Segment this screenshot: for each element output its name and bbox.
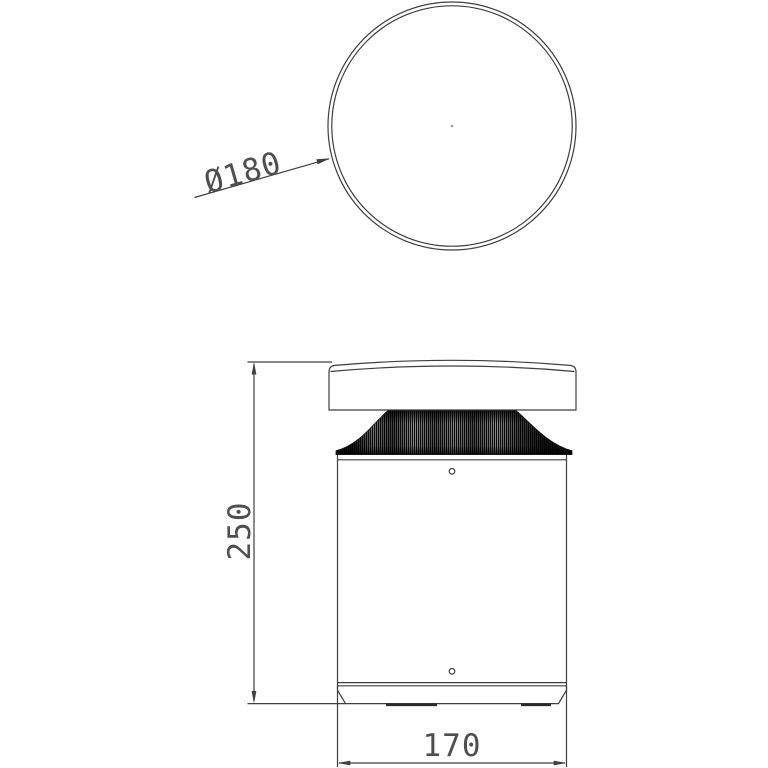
technical-drawing-svg: [0, 0, 768, 768]
height-dim-label: 250: [222, 502, 258, 561]
diameter-leader-arrowhead: [316, 158, 330, 164]
cone-shade-vertical: [336, 411, 572, 455]
width-dim-arrow-left: [338, 761, 351, 766]
screw-hole-bottom: [449, 669, 455, 675]
cap-outline: [329, 360, 576, 410]
width-dim-label: 170: [423, 728, 482, 764]
center-mark: [451, 125, 454, 128]
top-view: [195, 2, 577, 250]
front-view: [248, 360, 577, 705]
technical-drawing-page: Ø180 250 170: [0, 0, 768, 768]
cap-rim-line: [331, 366, 575, 372]
base-section: [338, 686, 567, 705]
height-dim-arrow-bottom: [252, 691, 257, 704]
height-dim-arrow-top: [252, 362, 257, 375]
base-outline: [338, 686, 567, 704]
cone-section: [336, 411, 572, 455]
body-section: [338, 455, 567, 690]
screw-hole-top: [449, 469, 455, 475]
width-dim-arrow-right: [554, 761, 567, 766]
